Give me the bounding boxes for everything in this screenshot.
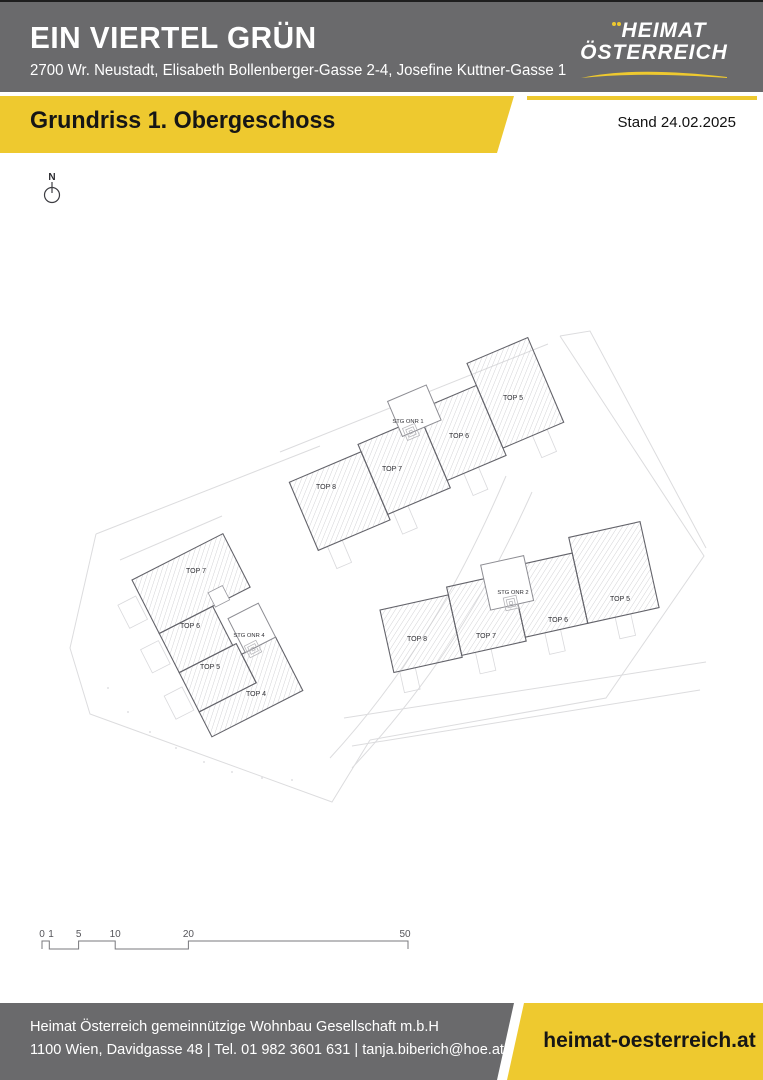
unit-label-top6-stg2: TOP 6 (548, 617, 568, 624)
footer-company-text: Heimat Österreich gemeinnützige Wohnbau … (30, 1016, 504, 1061)
north-arrow-icon: N (45, 172, 60, 203)
stair-label-stg1: STG ONR 1 (392, 419, 423, 425)
building-stiege-1 (274, 338, 582, 573)
sheet-title-banner: Grundriss 1. Obergeschoss (0, 96, 514, 153)
footer-website-block: heimat-oesterreich.at (506, 1003, 763, 1080)
company-contact: 1100 Wien, Davidgasse 48 | Tel. 01 982 3… (30, 1039, 504, 1062)
scale-bar: 0 1 5 10 20 50 (39, 929, 411, 949)
svg-text:20: 20 (183, 929, 195, 940)
svg-text:10: 10 (110, 929, 122, 940)
unit-label-top4-stg4: TOP 4 (246, 691, 266, 698)
logo-dot-icon (612, 22, 616, 26)
company-name: Heimat Österreich gemeinnützige Wohnbau … (30, 1016, 504, 1039)
website-url: heimat-oesterreich.at (536, 1029, 763, 1053)
floorplan-sheet: { "page": {"top_border_color": "#1e1e1e"… (0, 0, 763, 1080)
stair-label-stg4: STG ONR 4 (233, 633, 265, 639)
logo-swoosh-icon (579, 69, 729, 79)
unit-label-top7-stg2: TOP 7 (476, 633, 496, 640)
svg-text:5: 5 (76, 929, 82, 940)
banner-rule (527, 96, 757, 100)
svg-text:N: N (48, 172, 55, 183)
unit-label-top5-stg4: TOP 5 (200, 664, 220, 671)
unit-label-top5-stg1: TOP 5 (503, 395, 523, 402)
unit-label-top8-stg2: TOP 8 (407, 636, 427, 643)
project-title: EIN VIERTEL GRÜN (30, 20, 317, 56)
footer-company-block: Heimat Österreich gemeinnützige Wohnbau … (0, 1003, 514, 1080)
footer: Heimat Österreich gemeinnützige Wohnbau … (0, 1003, 763, 1080)
logo-line1: HEIMAT (569, 20, 739, 41)
unit-label-top7-stg1: TOP 7 (382, 466, 402, 473)
stair-label-stg2: STG ONR 2 (497, 590, 528, 596)
svg-text:1: 1 (48, 929, 54, 940)
revision-date: Stand 24.02.2025 (618, 114, 736, 131)
header: EIN VIERTEL GRÜN 2700 Wr. Neustadt, Elis… (0, 2, 763, 92)
site-plan-drawing: N (0, 0, 763, 1080)
logo-dot-icon (617, 22, 621, 26)
unit-label-top5-stg2: TOP 5 (610, 596, 630, 603)
unit-label-top6-stg4: TOP 6 (180, 623, 200, 630)
building-stiege-2 (374, 522, 666, 694)
unit-label-top6-stg1: TOP 6 (449, 433, 469, 440)
building-stiege-4 (111, 534, 303, 748)
sheet-title: Grundriss 1. Obergeschoss (30, 107, 335, 135)
unit-label-top7-stg4: TOP 7 (186, 568, 206, 575)
svg-text:0: 0 (39, 929, 45, 940)
project-address: 2700 Wr. Neustadt, Elisabeth Bollenberge… (30, 62, 566, 80)
unit-label-top8-stg1: TOP 8 (316, 484, 336, 491)
heimat-oesterreich-logo: HEIMAT ÖSTERREICH (569, 20, 739, 79)
logo-line2: ÖSTERREICH (569, 42, 739, 63)
svg-text:50: 50 (399, 929, 411, 940)
